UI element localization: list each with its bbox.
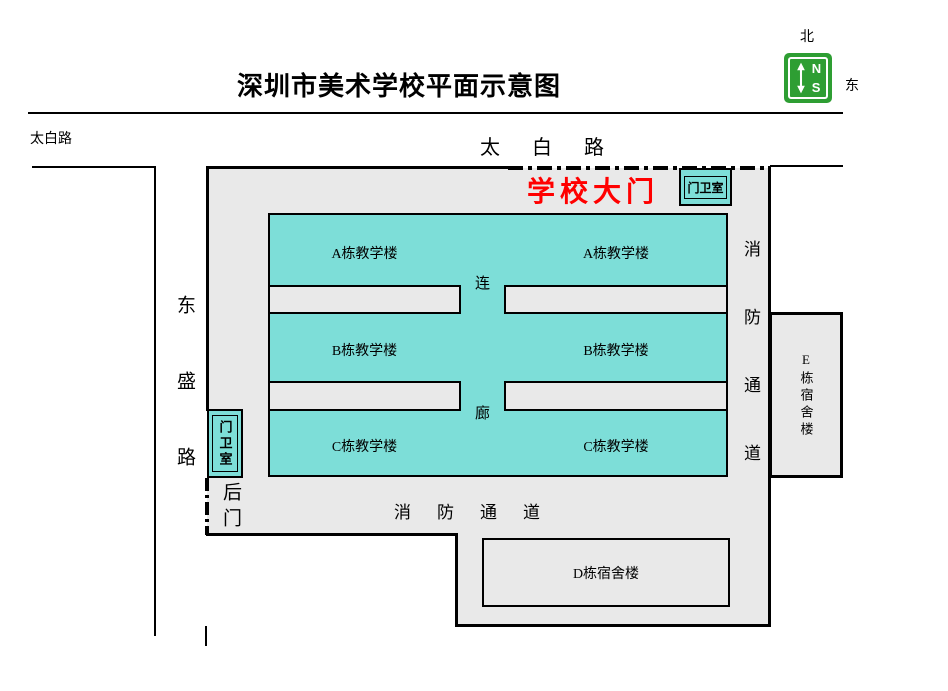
road-edge-line-right xyxy=(770,165,843,167)
compass-s-letter: S xyxy=(812,81,821,94)
main-gate-label: 学校大门 xyxy=(527,170,659,210)
compass-east-label: 东 xyxy=(845,75,859,95)
taibai-road-label: 太白路 xyxy=(480,131,636,160)
title-rule-line xyxy=(28,112,843,114)
compass-letters: N S xyxy=(812,62,821,94)
courtyard-gap-top-left xyxy=(268,285,461,314)
dormitory-d-label: D栋宿舍楼 xyxy=(573,563,639,583)
gatehouse-top: 门卫室 xyxy=(679,168,732,206)
taibai-road-corner-label: 太白路 xyxy=(30,128,72,148)
road-edge-line-left xyxy=(32,166,155,168)
back-gate-label: 后门 xyxy=(217,482,244,534)
dormitory-e-building: E栋宿舍楼 xyxy=(769,312,843,478)
corridor-label-top: 连 xyxy=(461,272,504,293)
campus-border-top xyxy=(206,166,508,169)
courtyard-gap-bottom-left xyxy=(268,381,461,411)
fire-lane-bottom-label: 消防通道 xyxy=(394,498,566,523)
compass-n-letter: N xyxy=(812,62,821,75)
building-a-right-label: A栋教学楼 xyxy=(504,243,728,263)
gatehouse-left: 门卫室 xyxy=(207,409,243,478)
campus-border-step xyxy=(455,534,458,627)
courtyard-gap-bottom-right xyxy=(504,381,728,411)
dongsheng-road-label: 东盛路 xyxy=(171,295,198,523)
boundary-tick-line xyxy=(205,626,207,646)
campus-border-bottom xyxy=(456,624,771,627)
dongsheng-road-line xyxy=(154,166,156,636)
compass-north-label: 北 xyxy=(800,26,814,46)
compass-icon: N S xyxy=(784,53,832,103)
campus-border-left xyxy=(206,166,209,411)
north-south-arrow-icon xyxy=(795,61,807,95)
page-title: 深圳市美术学校平面示意图 xyxy=(237,66,561,103)
building-b-left-label: B栋教学楼 xyxy=(268,340,461,360)
back-gate-dashdot-line xyxy=(205,478,209,535)
building-c-left-label: C栋教学楼 xyxy=(268,436,461,456)
building-b-right-label: B栋教学楼 xyxy=(504,340,728,360)
gatehouse-top-label: 门卫室 xyxy=(684,176,727,199)
corridor-label-bottom: 廊 xyxy=(461,402,504,423)
dormitory-d-building: D栋宿舍楼 xyxy=(482,538,730,607)
gatehouse-left-label: 门卫室 xyxy=(212,415,238,472)
building-c-right-label: C栋教学楼 xyxy=(504,436,728,456)
school-map-page: 深圳市美术学校平面示意图 北 N S 东 太白路 太白路 东盛路 xyxy=(0,0,948,691)
courtyard-gap-top-right xyxy=(504,285,728,314)
dormitory-e-label: E栋宿舍楼 xyxy=(797,352,816,439)
building-a-left-label: A栋教学楼 xyxy=(268,243,461,263)
compass-inner-frame: N S xyxy=(788,57,828,99)
fire-lane-right-label: 消防通道 xyxy=(738,240,763,512)
